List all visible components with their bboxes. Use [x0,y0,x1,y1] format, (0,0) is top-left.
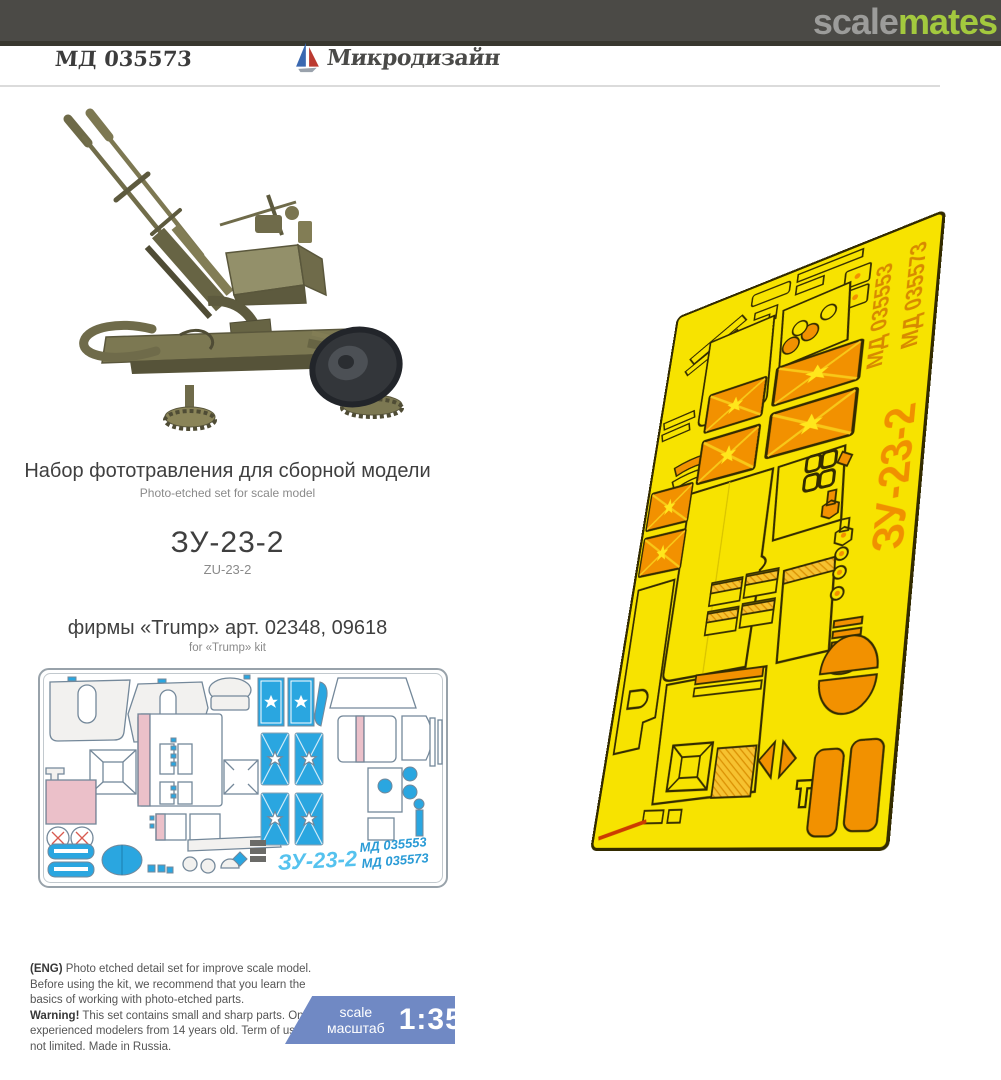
fret-photo: ЗУ-23-2 МД 035553 МД 035573 [590,209,946,851]
fret-diagram: ЗУ-23-2 МД 035553 МД 035573 [38,668,448,888]
footer-description: (ENG) Photo etched detail set for improv… [30,962,330,1055]
brand-name: Микродизайн [326,45,502,71]
sailboat-icon [295,41,321,75]
eng-note: (ENG) Photo etched detail set for improv… [30,962,330,1009]
gun-sight-box [226,245,326,305]
scale-badge: scale масштаб 1:35 [285,996,455,1044]
scalemates-logo-scale: scale [813,1,898,42]
header-divider [0,85,940,87]
scale-label-en: scale [327,1004,385,1020]
scalemates-logo: scalemates [813,2,997,42]
scale-value: 1:35 [399,1003,463,1037]
page-root: scalemates МД 035573 Микродизайн [0,0,1001,1080]
scalemates-logo-mates: mates [898,1,997,42]
topbar: scalemates [0,0,1001,46]
eng-note-text: Photo etched detail set for improve scal… [30,963,311,1006]
fret-photo-wrap: ЗУ-23-2 МД 035553 МД 035573 [590,209,946,851]
set-title-en: Photo-etched set for scale model [20,486,435,500]
zu-23-2-photo [58,103,438,438]
set-title-ru: Набор фототравления для сборной модели [20,460,435,483]
microdesign-logo: Микродизайн [295,38,500,78]
product-info: Набор фототравления для сборной модели P… [20,460,435,654]
warning-note: Warning! This set contains small and sha… [30,1009,330,1056]
fret-diagram-dark-parts [250,840,266,862]
diagram-subject-label: ЗУ-23-2 [277,846,359,875]
subject-title-en: ZU-23-2 [20,562,435,577]
subject-title-ru: ЗУ-23-2 [20,526,435,560]
product-code: МД 035573 [54,46,193,71]
scale-badge-labels: scale масштаб [327,1004,385,1036]
warning-label: Warning! [30,1010,79,1022]
kit-compatibility-ru: фирмы «Trump» арт. 02348, 09618 [20,617,435,640]
gun-jack-foot [165,385,215,429]
eng-label: (ENG) [30,963,63,975]
scale-label-ru: масштаб [327,1020,385,1036]
kit-compatibility-en: for «Trump» kit [20,642,435,654]
